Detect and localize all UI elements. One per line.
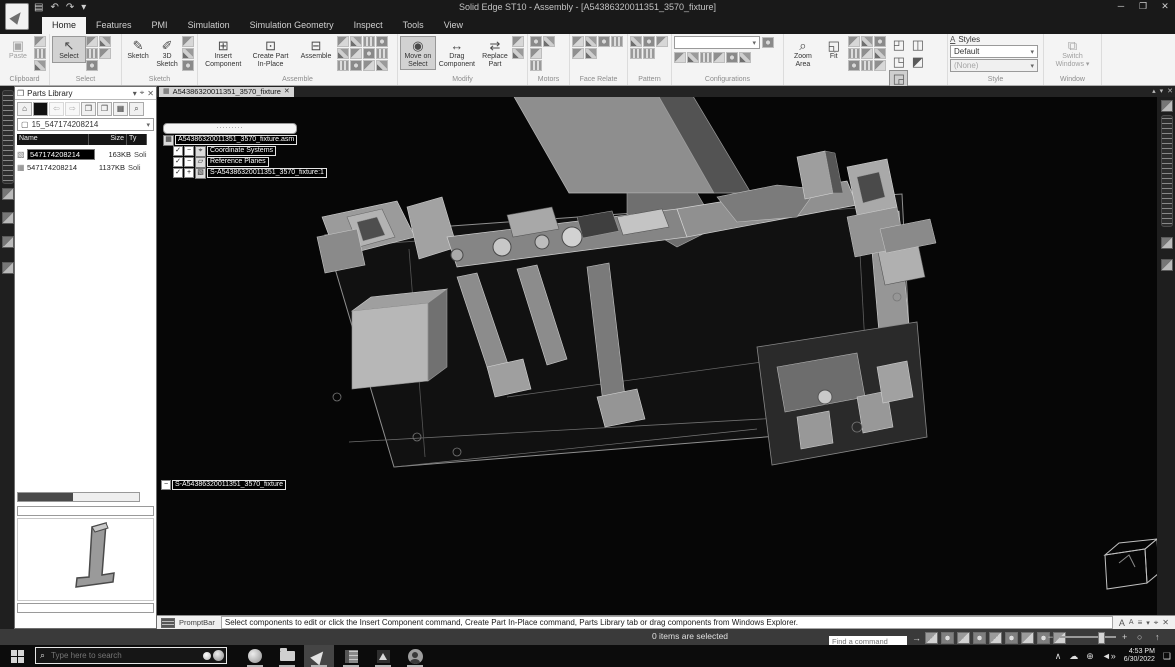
relate-icon[interactable] [337, 48, 349, 59]
configuration-icon[interactable] [713, 52, 725, 63]
hidden-icons-chevron[interactable]: ∧ [1055, 651, 1062, 662]
view-style-combo[interactable]: (None)▾ [950, 59, 1038, 72]
pathfinder-node-label: S-A54386320011351_3570_fixture:1 [207, 168, 327, 178]
chevron-down-icon: ▾ [752, 39, 756, 47]
sketch-tool-icon[interactable] [182, 48, 194, 59]
panel-close-icon[interactable]: ✕ [147, 89, 154, 98]
create-part-icon: ⊡ [265, 38, 276, 53]
clock[interactable]: 4:53 PM 6/30/2022 [1124, 648, 1155, 664]
column-name[interactable]: Name [17, 134, 89, 145]
relate-icon[interactable] [376, 36, 388, 47]
show-checkbox[interactable]: ✓ [173, 168, 183, 178]
sketch-3d-button[interactable]: ✐ 3D Sketch [152, 36, 182, 70]
select-visible-icon[interactable] [99, 48, 111, 59]
ribbon-group-modify: ◉ Move on Select ↔ Drag Component ⇄ Repl… [398, 34, 528, 85]
cut-icon[interactable] [34, 36, 46, 47]
relate-icon[interactable] [376, 60, 388, 71]
part-file-icon: ▦ [17, 163, 27, 172]
window-title: Solid Edge ST10 - Assembly - [A543863200… [0, 2, 1175, 12]
tray-time: 4:53 PM [1124, 648, 1155, 656]
paste-special-icon[interactable] [34, 60, 46, 71]
ribbon-group-orient: ⌕ Zoom Area ◱ Fit ◰ ◫ ◳ ◩ ◲ Orient [784, 34, 948, 85]
face-relate-icon[interactable] [572, 36, 584, 47]
select-options-icon[interactable] [86, 36, 98, 47]
views-button[interactable]: ▦ [113, 102, 128, 116]
promptbar-controls: A A ≡ ▾ ⌖ ✕ [1113, 618, 1175, 628]
ribbon-group-pattern: Pattern [628, 34, 672, 85]
part-icon: ▧ [195, 168, 206, 179]
statusbar-view-tools: → [912, 632, 1069, 644]
face-relate-icon[interactable] [611, 36, 623, 47]
close-button[interactable]: ✕ [1155, 1, 1175, 12]
fit-button[interactable]: ◱ Fit [820, 36, 848, 63]
sketch-3d-icon: ✐ [162, 38, 173, 53]
back-button[interactable]: ⇦ [49, 102, 64, 116]
relate-icon[interactable] [337, 36, 349, 47]
part-preview [17, 518, 154, 601]
shaded-edges-view-icon[interactable]: ◲ [889, 70, 908, 87]
volume-icon[interactable]: ◄» [1102, 651, 1116, 661]
relate-icon[interactable] [363, 36, 375, 47]
left-dock-strip [0, 86, 14, 629]
tab-inspect[interactable]: Inspect [344, 17, 393, 34]
part-name: 547174208214 [27, 163, 89, 172]
forward-button[interactable]: ⇨ [65, 102, 80, 116]
select-cursor-icon: ↖ [64, 38, 75, 53]
panel-pin-icon[interactable]: ⌖ [140, 88, 145, 98]
dock-panel-icon[interactable] [1161, 259, 1173, 271]
motor-icon[interactable] [530, 36, 542, 47]
ribbon-spacer [1102, 34, 1175, 85]
app-button[interactable] [5, 3, 29, 30]
rotate-tool-icon[interactable] [1005, 632, 1018, 644]
docked-panel-vertical-tab[interactable] [1161, 115, 1173, 227]
style-combo[interactable]: Default▾ [950, 45, 1038, 58]
face-relate-icon[interactable] [585, 36, 597, 47]
orient-tool-icon[interactable] [848, 48, 860, 59]
tab-simulation-geometry[interactable]: Simulation Geometry [240, 17, 344, 34]
select-clear-icon[interactable] [86, 60, 98, 71]
tab-list-icon[interactable]: ▾ [1160, 87, 1164, 95]
sketch-button[interactable]: ✎ Sketch [124, 36, 152, 63]
view-cube-icon[interactable]: ◳ [889, 53, 908, 70]
tab-simulation[interactable]: Simulation [178, 17, 240, 34]
dock-panel-icon[interactable] [1161, 100, 1173, 112]
autohide-icon[interactable]: ≡ [1138, 618, 1143, 627]
system-tray: ∧ ☁ ⊕ ◄» 4:53 PM 6/30/2022 ❑ [1055, 645, 1171, 667]
sketch-tool-icon[interactable] [182, 60, 194, 71]
drag-component-icon: ↔ [450, 38, 463, 53]
ribbon-group-sketch: ✎ Sketch ✐ 3D Sketch Sketch [122, 34, 198, 85]
find-command-box[interactable] [829, 631, 907, 642]
tab-scroll-up-icon[interactable]: ▴ [1152, 87, 1156, 95]
parts-library-icon: ❒ [17, 89, 24, 98]
pathfinder-node-label: Coordinate Systems [207, 146, 276, 156]
fit-icon: ◱ [828, 38, 840, 53]
select-filter-icon[interactable] [99, 36, 111, 47]
relate-icon[interactable] [376, 48, 388, 59]
orient-tool-icon[interactable] [874, 36, 886, 47]
modify-tool-icon[interactable] [512, 36, 524, 47]
face-relate-icon[interactable] [585, 48, 597, 59]
folder-doc-icon: ▢ [21, 120, 29, 129]
prompt-bar: PromptBar Select components to edit or c… [157, 615, 1175, 629]
document-tab-bar: ▦ A54386320011351_3570_fixture ✕ ▴ ▾ ✕ [157, 86, 1175, 97]
face-relate-icon[interactable] [598, 36, 610, 47]
orient-tool-icon[interactable] [848, 60, 860, 71]
pattern-icon[interactable] [643, 36, 655, 47]
taskbar-search-box[interactable]: ⌕ [35, 647, 227, 664]
pattern-icon[interactable] [643, 48, 655, 59]
taskbar-search-input[interactable] [49, 650, 203, 661]
contact-icon [408, 649, 423, 664]
pathfinder-node-label: Reference Planes [207, 157, 269, 167]
paste-icon: ▣ [12, 38, 24, 53]
list-column-headers: Name Size Ty [17, 134, 147, 145]
motor-icon[interactable] [530, 60, 542, 71]
tab-tools[interactable]: Tools [393, 17, 434, 34]
orient-tool-icon[interactable] [861, 36, 873, 47]
pathfinder-footer-label: S-A54386320011351_3570_fixture [172, 480, 286, 490]
zoom-out-icon[interactable]: − [1048, 632, 1053, 642]
chevron-down-icon[interactable]: ▾ [1146, 619, 1150, 627]
document-tab[interactable]: ▦ A54386320011351_3570_fixture ✕ [159, 87, 294, 97]
assembly-icon: ▦ [163, 135, 174, 146]
taskbar-app-file-explorer[interactable] [272, 645, 302, 667]
cortana-icon [213, 650, 224, 661]
ribbon-group-clipboard: ▣ Paste Clipboard [0, 34, 50, 85]
relate-icon[interactable] [350, 36, 362, 47]
collapse-icon[interactable]: − [184, 146, 194, 156]
search-button[interactable]: ⌕ [129, 102, 144, 116]
panel-splitter[interactable] [17, 506, 154, 516]
relate-icon[interactable] [337, 60, 349, 71]
replace-part-icon: ⇄ [490, 38, 501, 53]
tray-date: 6/30/2022 [1124, 656, 1155, 664]
coordinate-system-icon: ⌖ [195, 146, 206, 157]
taskbar-app-acrobat[interactable] [368, 645, 398, 667]
windows-logo-icon [11, 650, 24, 663]
pathfinder-node[interactable]: ✓ − ⌖ Coordinate Systems [173, 146, 327, 156]
dock-panel-icon[interactable] [2, 188, 14, 200]
replace-part-button[interactable]: ⇄ Replace Part [478, 36, 512, 70]
pathfinder-node[interactable]: ✓ + ▧ S-A54386320011351_3570_fixture:1 [173, 168, 327, 178]
taskbar-app-edge[interactable] [240, 645, 270, 667]
action-center-icon[interactable]: ❑ [1163, 651, 1171, 662]
part-size: 1137KB [89, 163, 125, 172]
pan-tool-icon[interactable] [989, 632, 1002, 644]
quick-access-toolbar: ▤ ↶ ↷ ▾ [34, 2, 86, 13]
pathfinder-footer-item[interactable]: − S-A54386320011351_3570_fixture [161, 480, 286, 490]
list-item[interactable]: ▧ 547174208214 163KB Soli [17, 148, 154, 160]
file-explorer-icon [280, 651, 295, 661]
ribbon-group-configurations: ▾ Configurations [672, 34, 784, 85]
face-relate-icon[interactable] [572, 48, 584, 59]
font-decrease-icon[interactable]: A [1129, 619, 1134, 626]
view-cube-icon[interactable]: ◫ [908, 36, 927, 53]
up-folder-button[interactable]: ❒ [81, 102, 96, 116]
graphics-viewport[interactable]: ········· ▦ A54386320011351_3570_fixture… [157, 97, 1157, 615]
zoom-slider-track[interactable] [1060, 636, 1116, 638]
font-increase-icon[interactable]: A [1119, 618, 1125, 628]
tab-features[interactable]: Features [86, 17, 142, 34]
common-views-icon[interactable] [1021, 632, 1034, 644]
pathfinder-root-row[interactable]: ▦ A54386320011351_3570_fixture.asm [163, 135, 327, 145]
reference-plane-icon: ▱ [195, 157, 206, 168]
window-layout-icon[interactable] [1053, 632, 1066, 644]
docked-panel-vertical-tab[interactable] [2, 90, 14, 184]
motor-icon[interactable] [530, 48, 542, 59]
home-folder-button[interactable]: ⌂ [17, 102, 32, 116]
pattern-icon[interactable] [630, 48, 642, 59]
show-checkbox[interactable]: ✓ [173, 157, 183, 167]
solid-edge-icon [310, 647, 328, 665]
stop-button[interactable] [33, 102, 48, 116]
configuration-icon[interactable] [739, 52, 751, 63]
configuration-icon[interactable] [687, 52, 699, 63]
selection-status: 0 items are selected [615, 631, 765, 641]
sketch-icon: ✎ [133, 38, 144, 53]
taskbar-app-contact[interactable] [400, 645, 430, 667]
part-type: Soli [131, 150, 152, 159]
pathfinder-search-box[interactable]: ········· [163, 123, 297, 134]
orient-tool-icon[interactable] [848, 36, 860, 47]
move-on-select-button[interactable]: ◉ Move on Select [400, 36, 436, 70]
search-artwork [203, 652, 211, 660]
switch-windows-button[interactable]: ⧉ Switch Windows ▾ [1047, 36, 1099, 70]
preview-footer-bar [17, 603, 154, 613]
drag-component-button[interactable]: ↔ Drag Component [436, 36, 478, 70]
relate-icon[interactable] [363, 60, 375, 71]
tab-view[interactable]: View [434, 17, 473, 34]
start-button[interactable] [0, 645, 34, 667]
promptbar-message: Select components to edit or click the I… [221, 616, 1113, 629]
relate-icon[interactable] [363, 48, 375, 59]
scrollbar-thumb[interactable] [18, 493, 73, 501]
edge-icon [248, 649, 262, 663]
part-size: 163KB [95, 150, 131, 159]
taskbar: ⌕ ∧ ☁ ⊕ ◄» 4:53 PM 6/30/2022 ❑ [0, 645, 1175, 667]
configuration-save-icon[interactable] [762, 37, 774, 48]
part-file-icon: ▧ [17, 150, 27, 159]
onedrive-icon[interactable]: ☁ [1069, 651, 1078, 662]
styles-label[interactable]: Styles [958, 35, 980, 44]
redo-icon[interactable]: ↷ [66, 2, 74, 13]
expand-icon[interactable]: + [184, 168, 194, 178]
fit-tool-icon[interactable] [973, 632, 986, 644]
zoom-in-icon[interactable]: + [1122, 632, 1127, 642]
chevron-down-icon: ▾ [1030, 62, 1034, 70]
document-tab-close-icon[interactable]: ✕ [284, 87, 290, 97]
promptbar-close-icon[interactable]: ✕ [1162, 618, 1169, 627]
titlebar: Solid Edge ST10 - Assembly - [A543863200… [0, 0, 1175, 17]
select-box-icon[interactable] [86, 48, 98, 59]
panel-menu-icon[interactable]: ▾ [133, 89, 137, 98]
configurations-combo[interactable]: ▾ [674, 36, 760, 49]
orient-tool-icon[interactable] [874, 48, 886, 59]
tab-close-icon[interactable]: ✕ [1167, 87, 1173, 95]
assemble-button[interactable]: ⊟ Assemble [295, 36, 338, 63]
copy-icon[interactable] [34, 48, 46, 59]
chevron-down-icon: ▾ [146, 121, 150, 129]
zoom-slider-thumb[interactable] [1098, 632, 1105, 644]
taskbar-app-excel[interactable] [336, 645, 366, 667]
part-type: Soli [125, 163, 146, 172]
chevron-down-icon: ▾ [1030, 48, 1034, 56]
pin-icon[interactable]: ⌖ [1154, 618, 1159, 628]
taskbar-app-solid-edge[interactable] [304, 645, 334, 667]
acrobat-icon [377, 650, 390, 663]
promptbar-label: PromptBar [179, 618, 215, 627]
dock-panel-icon[interactable] [2, 236, 14, 248]
orient-tool-icon[interactable] [874, 60, 886, 71]
ribbon-group-motors: Motors [528, 34, 570, 85]
create-part-in-place-button[interactable]: ⊡ Create Part In-Place [246, 36, 294, 70]
folder-combo[interactable]: ▢15_547174208214 ▾ [17, 118, 154, 131]
right-dock-strip [1157, 97, 1175, 615]
save-icon[interactable]: ▤ [34, 2, 43, 13]
search-icon: ⌕ [40, 650, 45, 661]
column-type[interactable]: Ty [127, 134, 147, 145]
pattern-icon[interactable] [630, 36, 642, 47]
orient-tool-icon[interactable] [861, 60, 873, 71]
show-checkbox[interactable]: ✓ [173, 146, 183, 156]
restore-button[interactable]: ❐ [1133, 1, 1153, 12]
solid-edge-logo-icon [9, 9, 24, 25]
dock-panel-icon[interactable] [1161, 237, 1173, 249]
ribbon-group-style: A Styles Default▾ (None)▾ Style [948, 34, 1044, 85]
undo-icon[interactable]: ↶ [50, 2, 58, 13]
promptbar-icon [161, 618, 175, 628]
expand-statusbar-icon[interactable]: ↑ [1155, 632, 1160, 642]
document-tab-label: A54386320011351_3570_fixture [173, 87, 281, 97]
part-name: 547174208214 [27, 149, 95, 160]
relate-icon[interactable] [350, 60, 362, 71]
next-view-icon[interactable]: → [912, 633, 921, 643]
dock-panel-icon[interactable] [2, 262, 14, 274]
ribbon-group-face-relate: Face Relate [570, 34, 628, 85]
screen: { "icons": { "save": "▤", "undo": "↶", "… [0, 0, 1175, 667]
configuration-icon[interactable] [674, 52, 686, 63]
tab-bar-controls: ▴ ▾ ✕ [1152, 87, 1173, 95]
document-icon: ▦ [163, 87, 170, 97]
list-item[interactable]: ▦ 547174208214 1137KB Soli [17, 161, 154, 173]
zoom-area-icon: ⌕ [799, 38, 806, 53]
column-size[interactable]: Size [89, 134, 127, 145]
ribbon: ▣ Paste Clipboard ↖ Select [0, 34, 1175, 86]
ribbon-group-assemble: ⊞ Insert Component ⊡ Create Part In-Plac… [198, 34, 398, 85]
collapse-icon[interactable]: − [184, 157, 194, 167]
new-folder-button[interactable]: ❐ [97, 102, 112, 116]
move-on-select-icon: ◉ [412, 38, 423, 53]
full-screen-icon[interactable]: ○ [1137, 632, 1142, 642]
zoom-area-button[interactable]: ⌕ Zoom Area [786, 36, 820, 70]
excel-icon [345, 650, 358, 663]
switch-windows-icon: ⧉ [1068, 38, 1077, 53]
zoom-area-tool-icon[interactable] [957, 632, 970, 644]
configuration-icon[interactable] [726, 52, 738, 63]
select-button[interactable]: ↖ Select [52, 36, 86, 63]
shaded-view-icon[interactable]: ◩ [908, 53, 927, 70]
configuration-icon[interactable] [700, 52, 712, 63]
insert-component-icon: ⊞ [218, 38, 229, 53]
view-cube-icon[interactable]: ◰ [889, 36, 908, 53]
parts-library-header: ❒ Parts Library ▾ ⌖ ✕ [15, 87, 156, 100]
tab-pmi[interactable]: PMI [142, 17, 178, 34]
modify-tool-icon[interactable] [512, 48, 524, 59]
pathfinder-node[interactable]: ✓ − ▱ Reference Planes [173, 157, 327, 167]
part-preview-thumbnail [18, 519, 153, 600]
qat-customize-icon[interactable]: ▾ [81, 2, 86, 13]
insert-component-button[interactable]: ⊞ Insert Component [200, 36, 246, 70]
zoom-tool-icon[interactable] [941, 632, 954, 644]
parts-library-title: Parts Library [27, 89, 130, 98]
ribbon-group-select: ↖ Select Select [50, 34, 122, 85]
network-icon[interactable]: ⊕ [1086, 651, 1094, 662]
ribbon-tab-row: Home Features PMI Simulation Simulation … [0, 17, 1175, 34]
tab-home[interactable]: Home [42, 17, 86, 34]
orient-tool-icon[interactable] [861, 48, 873, 59]
parts-library-panel: ❒ Parts Library ▾ ⌖ ✕ ⌂ ⇦ ⇨ ❒ ❐ ▦ ⌕ ▢15_… [14, 86, 157, 629]
view-tool-icon[interactable] [925, 632, 938, 644]
sketch-tool-icon[interactable] [182, 36, 194, 47]
dock-panel-icon[interactable] [2, 212, 14, 224]
assemble-icon: ⊟ [311, 38, 322, 53]
pathfinder-overlay: ········· ▦ A54386320011351_3570_fixture… [163, 123, 327, 178]
view-orientation-cube[interactable] [1105, 539, 1157, 589]
status-bar: 0 items are selected → − + ○ ↑ [0, 629, 1175, 645]
minimize-button[interactable]: ─ [1111, 1, 1131, 11]
collapse-icon[interactable]: − [161, 480, 171, 490]
parts-library-toolbar: ⌂ ⇦ ⇨ ❒ ❐ ▦ ⌕ [17, 102, 144, 116]
pattern-icon[interactable] [656, 36, 668, 47]
paste-button[interactable]: ▣ Paste [2, 36, 34, 63]
relate-icon[interactable] [350, 48, 362, 59]
motor-icon[interactable] [543, 36, 555, 47]
pathfinder-root-label: A54386320011351_3570_fixture.asm [175, 135, 297, 145]
ribbon-group-window: ⧉ Switch Windows ▾ Window [1044, 34, 1102, 85]
styles-icon: A [950, 35, 955, 44]
horizontal-scrollbar[interactable] [17, 492, 140, 502]
